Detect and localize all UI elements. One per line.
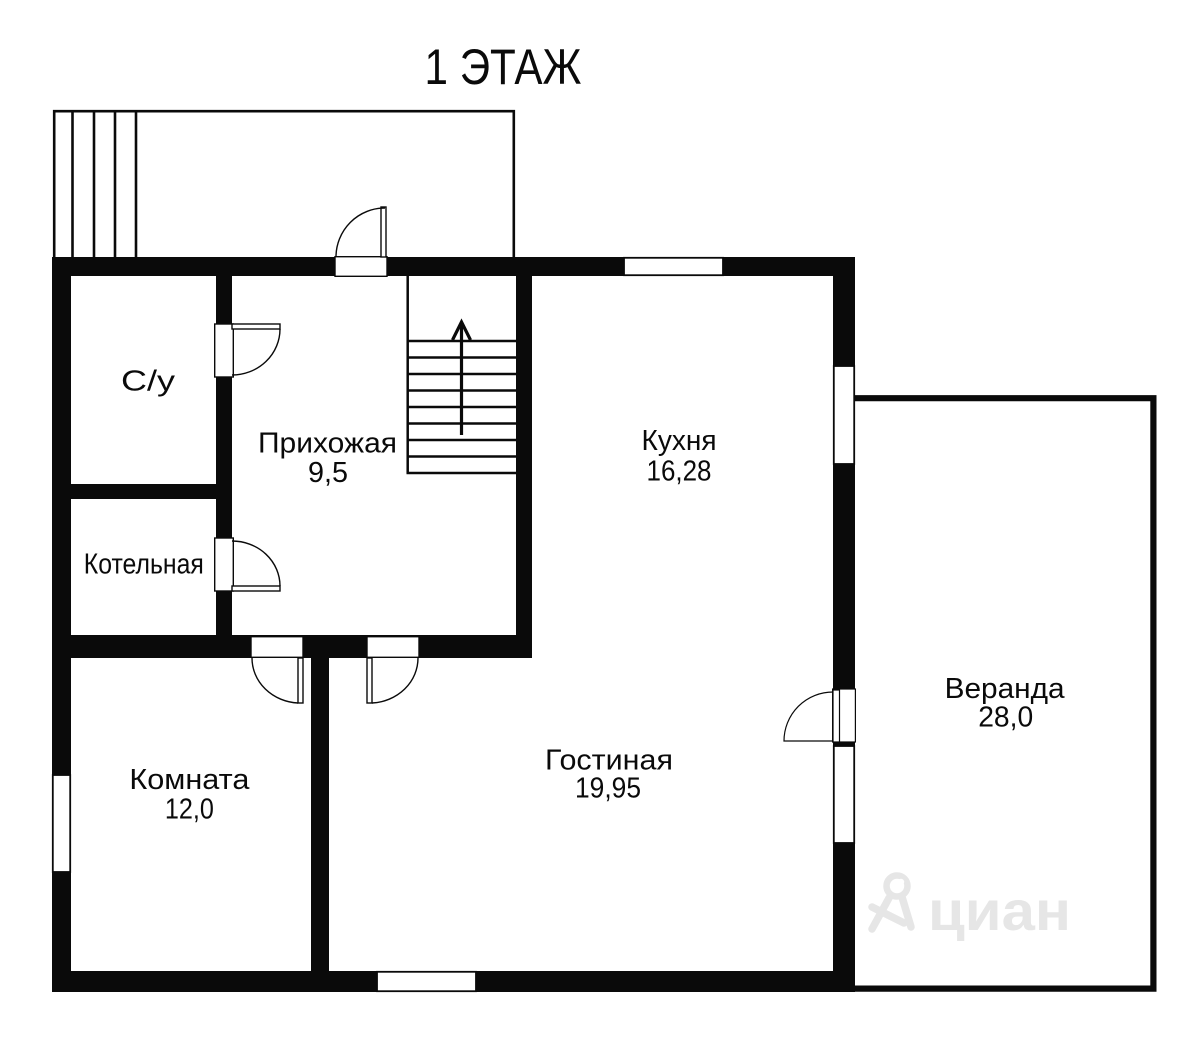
svg-text:Кухня: Кухня bbox=[642, 425, 717, 457]
svg-text:циан: циан bbox=[928, 879, 1071, 942]
svg-text:16,28: 16,28 bbox=[647, 456, 712, 488]
svg-text:1 ЭТАЖ: 1 ЭТАЖ bbox=[425, 38, 582, 95]
svg-text:12,0: 12,0 bbox=[165, 794, 214, 826]
svg-text:28,0: 28,0 bbox=[978, 702, 1033, 734]
svg-text:Прихожая: Прихожая bbox=[258, 428, 397, 460]
svg-text:Котельная: Котельная bbox=[84, 549, 204, 581]
svg-text:Веранда: Веранда bbox=[945, 673, 1066, 705]
svg-text:9,5: 9,5 bbox=[308, 457, 348, 489]
svg-text:19,95: 19,95 bbox=[575, 772, 641, 804]
svg-text:Комната: Комната bbox=[129, 764, 250, 796]
svg-text:С/у: С/у bbox=[121, 366, 176, 398]
